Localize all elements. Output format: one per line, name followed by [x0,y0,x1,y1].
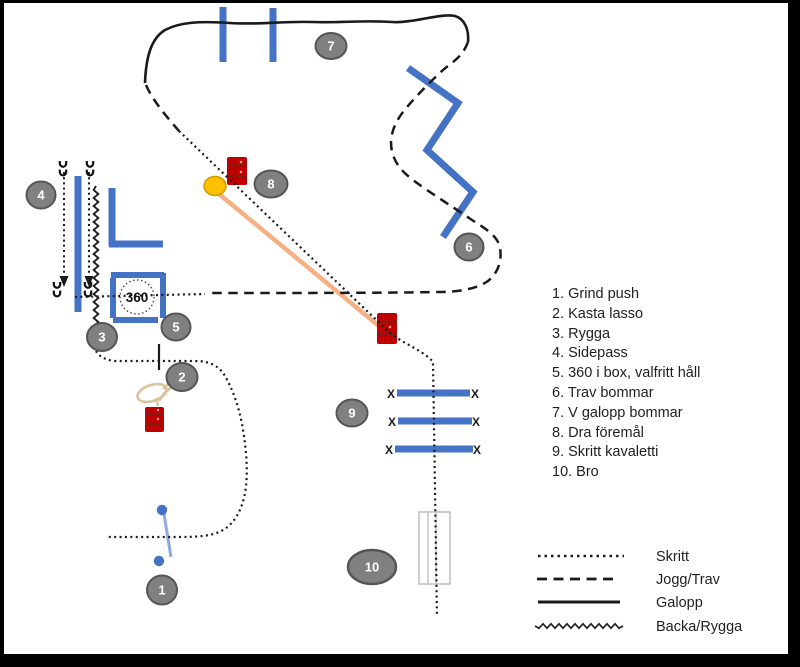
obstacle-8-drag-object [204,177,385,332]
marker-3: 3 [87,323,117,351]
exercise-item: 7. V galopp bommar [552,404,700,424]
legend: Skritt Jogg/Trav Galopp Backa/Rygga [535,549,743,635]
svg-text:2: 2 [178,370,185,385]
svg-text:4: 4 [37,188,45,203]
svg-text:7: 7 [327,39,334,54]
legend-label-jogg-trav: Jogg/Trav [656,572,721,588]
path-skritt [75,131,437,617]
x-mark: X [473,443,481,457]
legend-label-galopp: Galopp [656,595,703,611]
svg-text:5: 5 [172,320,179,335]
drag-rope [219,194,385,331]
exercise-item: 9. Skritt kavaletti [552,443,700,463]
exercise-item: 8. Dra föremål [552,424,700,444]
svg-text:10: 10 [365,560,379,575]
exercise-item: 1. Grind push [552,285,700,305]
screenshot-frame: X X X X X X 360 1 2 3 4 5 [0,0,800,667]
x-mark: X [388,415,396,429]
svg-text:8: 8 [267,177,274,192]
x-mark: X [387,387,395,401]
x-mark: X [385,443,393,457]
hoofprints-icon [54,282,60,296]
exercise-item: 2. Kasta lasso [552,305,700,325]
marker-1: 1 [147,576,177,605]
box-360-label: 360 [126,290,149,305]
legend-label-skritt: Skritt [656,549,689,565]
exercise-item: 3. Rygga [552,325,700,345]
obstacle-1-gate [154,505,171,566]
obstacle-10-bridge [419,512,450,584]
exercise-item: 10. Bro [552,463,700,483]
x-mark: X [472,415,480,429]
exercise-item: 4. Sidepass [552,344,700,364]
marker-9: 9 [337,400,368,427]
drag-ball [204,177,226,196]
marker-5: 5 [162,314,191,341]
x-mark: X [471,387,479,401]
obstacle-4-sidepass-track [54,161,94,296]
svg-text:3: 3 [98,330,105,345]
exercise-item: 5. 360 i box, valfritt håll [552,364,700,384]
marker-4: 4 [27,182,56,209]
marker-7: 7 [316,33,347,59]
marker-2: 2 [167,363,198,391]
legend-line-backa-rygga [535,624,623,628]
svg-text:6: 6 [465,240,472,255]
exercise-item: 6. Trav bommar [552,384,700,404]
marker-6: 6 [455,234,484,261]
obstacle-7-galopp-bommar [223,7,273,62]
marker-10: 10 [348,550,396,584]
barrel-middle [377,313,397,344]
exercise-list: 1. Grind push 2. Kasta lasso 3. Rygga 4.… [552,285,700,483]
path-backa-rygga [94,186,99,342]
marker-8: 8 [255,171,288,198]
barrel-lasso [145,407,164,432]
svg-text:1: 1 [158,583,165,598]
svg-text:9: 9 [348,406,355,421]
legend-label-backa-rygga: Backa/Rygga [656,619,743,635]
